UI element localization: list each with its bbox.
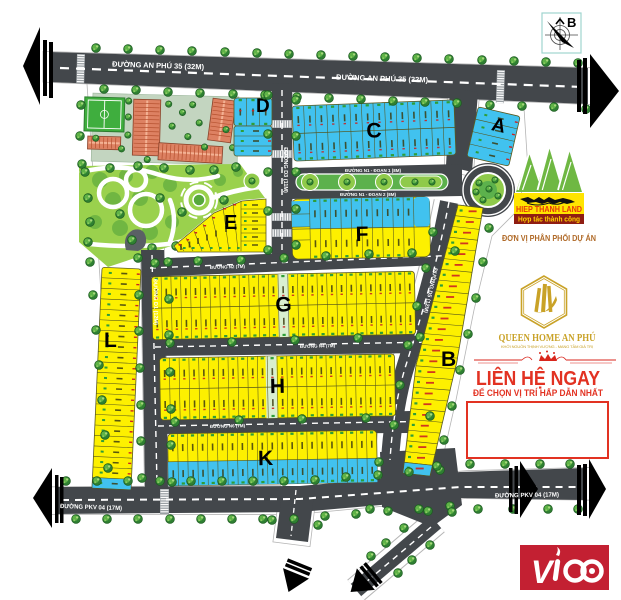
svg-text:E: E	[224, 212, 237, 234]
svg-text:B: B	[567, 15, 576, 30]
svg-text:ĐỂ CHỌN VỊ TRÍ HẤP DẪN NHẤT: ĐỂ CHỌN VỊ TRÍ HẤP DẪN NHẤT	[473, 387, 603, 398]
svg-text:K: K	[258, 447, 274, 470]
svg-text:ĐƯỜNG N1 - ĐOẠN 1 (8M): ĐƯỜNG N1 - ĐOẠN 1 (8M)	[345, 166, 402, 173]
svg-text:H: H	[270, 375, 286, 398]
svg-text:ĐƯỜNG PKV 04 (17M): ĐƯỜNG PKV 04 (17M)	[495, 490, 559, 499]
svg-text:ĐƠN VỊ PHÂN PHỐI DỰ ÁN: ĐƠN VỊ PHÂN PHỐI DỰ ÁN	[502, 232, 596, 243]
svg-text:ĐƯỜNG N1 - ĐOẠN 2 (8M): ĐƯỜNG N1 - ĐOẠN 2 (8M)	[340, 190, 397, 197]
svg-text:KHỞI NGUỒN THỊNH VƯỢNG - MANG: KHỞI NGUỒN THỊNH VƯỢNG - MANG TẦM GIÁ TR…	[501, 344, 593, 349]
svg-text:F: F	[355, 223, 368, 246]
svg-text:B: B	[441, 348, 456, 371]
svg-text:L: L	[104, 329, 117, 352]
svg-text:HIEP THANH LAND: HIEP THANH LAND	[516, 205, 582, 214]
svg-text:QUEEN HOME AN PHÚ: QUEEN HOME AN PHÚ	[499, 332, 596, 344]
svg-text:C: C	[366, 119, 382, 143]
svg-text:LIÊN HỆ NGAY: LIÊN HỆ NGAY	[476, 366, 601, 390]
svg-text:Hợp tác thành công: Hợp tác thành công	[518, 217, 580, 224]
svg-text:ĐƯỜNG D3 (11M): ĐƯỜNG D3 (11M)	[282, 147, 290, 193]
svg-text:V: V	[531, 554, 555, 590]
svg-text:G: G	[275, 293, 292, 316]
